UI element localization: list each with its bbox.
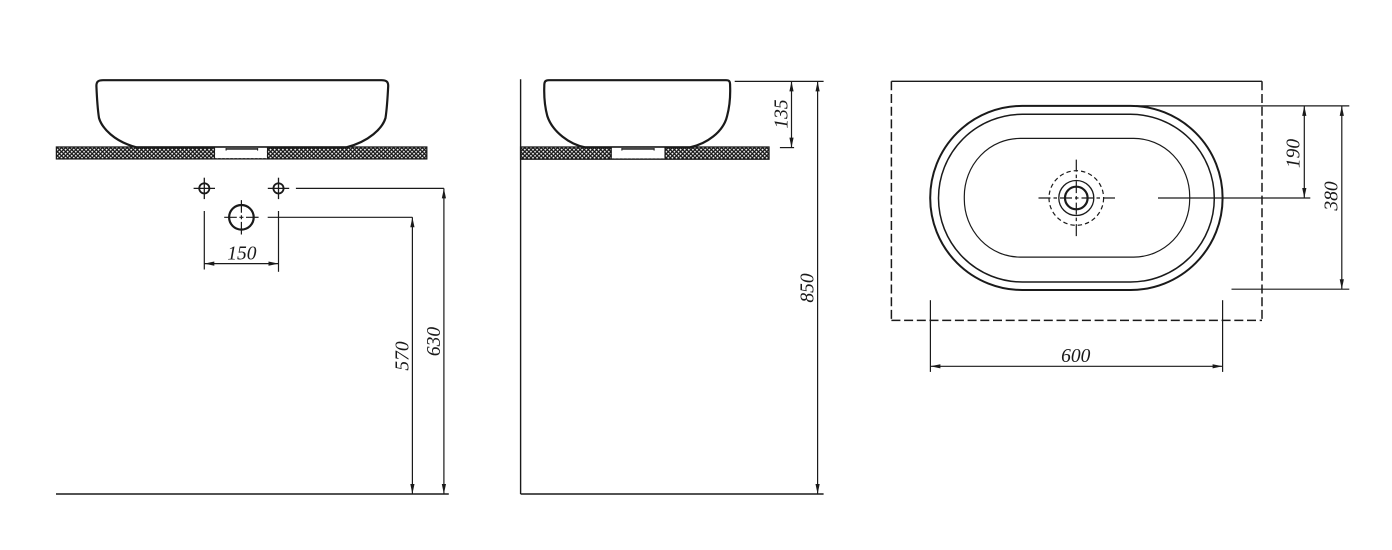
svg-text:630: 630	[424, 327, 445, 357]
svg-text:190: 190	[1284, 139, 1305, 169]
svg-text:135: 135	[771, 99, 792, 129]
svg-text:570: 570	[393, 341, 414, 371]
svg-text:380: 380	[1322, 181, 1343, 212]
svg-text:850: 850	[797, 273, 818, 303]
svg-text:600: 600	[1061, 346, 1091, 367]
svg-text:150: 150	[227, 244, 257, 265]
